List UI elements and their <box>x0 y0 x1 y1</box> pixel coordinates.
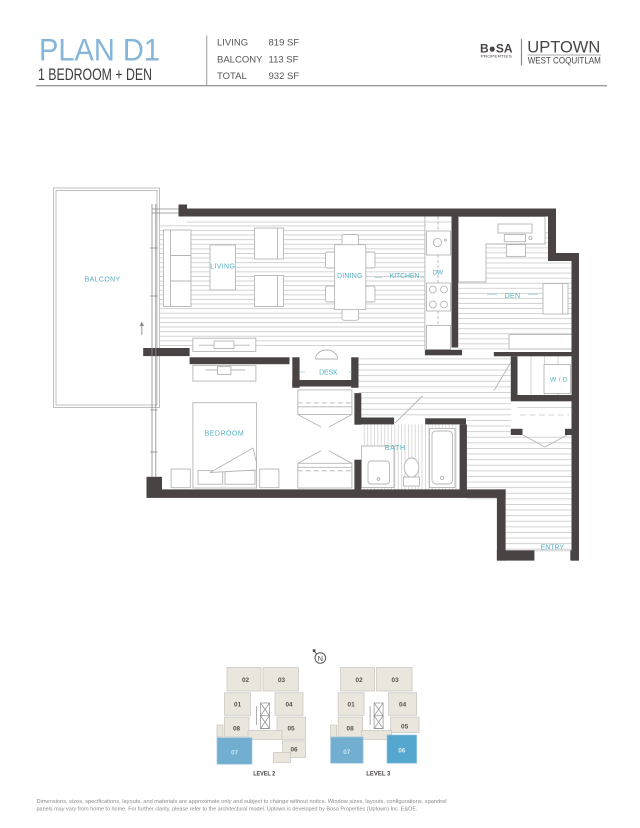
svg-text:LIVING: LIVING <box>210 264 235 271</box>
svg-text:01: 01 <box>234 702 242 709</box>
svg-text:02: 02 <box>356 677 364 684</box>
svg-text:03: 03 <box>392 677 400 684</box>
svg-text:04: 04 <box>399 702 407 709</box>
svg-text:LEVEL 3: LEVEL 3 <box>366 771 390 778</box>
svg-text:ENTRY: ENTRY <box>541 545 565 552</box>
svg-text:05: 05 <box>401 724 409 731</box>
svg-text:BEDROOM: BEDROOM <box>205 431 244 438</box>
svg-text:08: 08 <box>233 726 241 733</box>
svg-text:BALCONY: BALCONY <box>217 55 263 66</box>
svg-text:panels may vary from home to h: panels may vary from home to home. For f… <box>37 806 418 812</box>
svg-text:UPTOWN: UPTOWN <box>527 37 600 56</box>
svg-text:DESK: DESK <box>319 369 338 376</box>
svg-text:03: 03 <box>278 677 286 684</box>
svg-text:TOTAL: TOTAL <box>217 71 247 82</box>
svg-text:DINING: DINING <box>337 273 363 280</box>
svg-text:KITCHEN: KITCHEN <box>390 273 420 280</box>
svg-text:W/D: W/D <box>550 376 568 383</box>
svg-text:PROPERTIES: PROPERTIES <box>481 54 513 58</box>
svg-text:05: 05 <box>287 726 295 733</box>
svg-text:113 SF: 113 SF <box>269 55 299 66</box>
svg-text:01: 01 <box>348 702 356 709</box>
svg-text:LIVING: LIVING <box>217 38 248 49</box>
svg-text:08: 08 <box>347 726 355 733</box>
svg-text:07: 07 <box>231 750 239 757</box>
svg-text:06: 06 <box>290 747 298 754</box>
svg-text:DW: DW <box>433 270 444 277</box>
svg-text:N: N <box>318 654 323 663</box>
svg-text:932 SF: 932 SF <box>269 71 300 82</box>
svg-text:DEN: DEN <box>505 293 520 300</box>
svg-text:02: 02 <box>242 677 250 684</box>
svg-text:07: 07 <box>343 749 351 756</box>
svg-text:04: 04 <box>285 702 293 709</box>
svg-text:LEVEL 2: LEVEL 2 <box>253 771 275 778</box>
svg-text:06: 06 <box>398 748 406 755</box>
svg-text:819 SF: 819 SF <box>269 38 300 49</box>
svg-text:BALCONY: BALCONY <box>85 277 121 284</box>
svg-text:Dimensions, sizes, specificati: Dimensions, sizes, specifications, layou… <box>37 799 447 805</box>
svg-text:BATH: BATH <box>385 445 405 452</box>
svg-text:PLAN D1: PLAN D1 <box>39 32 160 68</box>
svg-text:WEST COQUITLAM: WEST COQUITLAM <box>528 56 601 66</box>
svg-text:1 BEDROOM + DEN: 1 BEDROOM + DEN <box>38 65 152 84</box>
